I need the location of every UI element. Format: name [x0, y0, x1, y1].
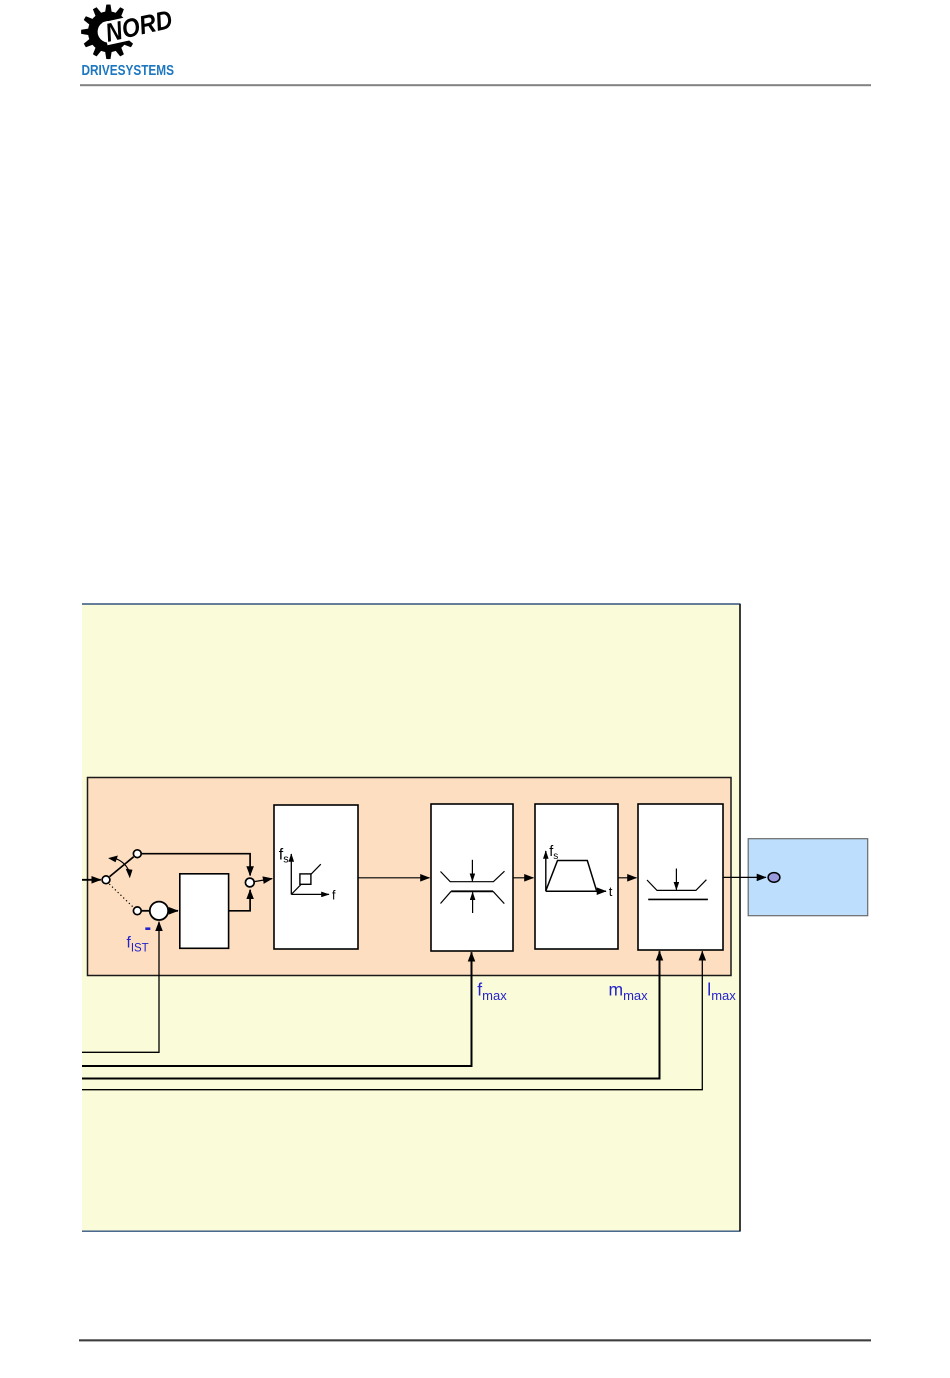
- svg-text:NORD: NORD: [103, 4, 176, 48]
- svg-text:t: t: [609, 884, 613, 899]
- svg-text:DRIVESYSTEMS: DRIVESYSTEMS: [82, 62, 175, 79]
- svg-text:f: f: [332, 889, 336, 903]
